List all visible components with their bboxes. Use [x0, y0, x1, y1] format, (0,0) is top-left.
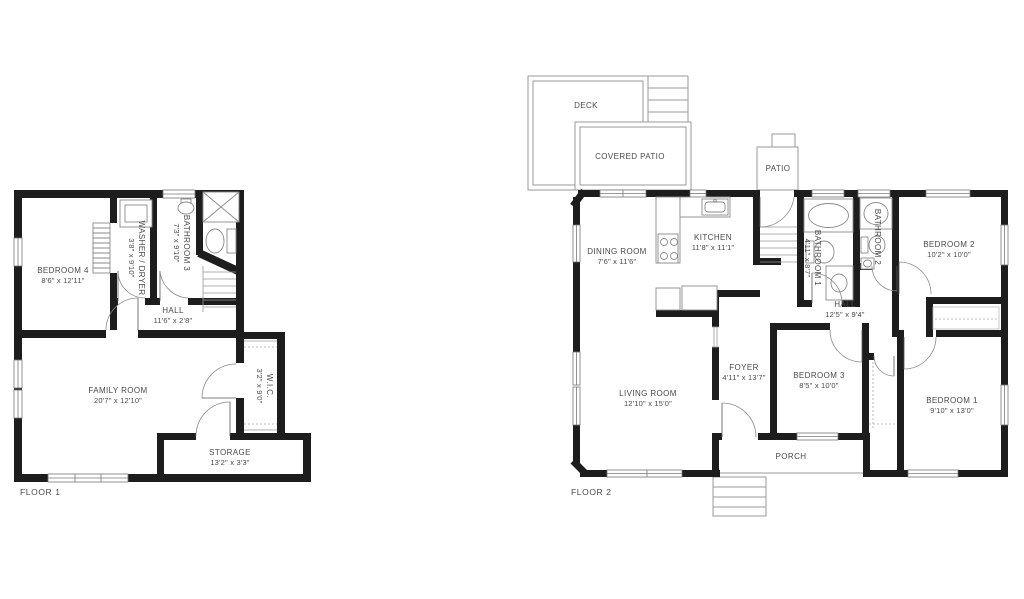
- floor1-walls: [14, 190, 311, 482]
- room-label-bedroom-2: BEDROOM 2 10'2" x 10'0": [923, 240, 975, 260]
- floor1-angled-wall: [199, 253, 238, 271]
- room-label-hall-floor1: HALL 11'6" x 2'8": [154, 306, 193, 326]
- room-label-bathroom-2: BATHROOM 2: [872, 209, 882, 265]
- room-label-foyer: FOYER 4'11" x 13'7": [722, 363, 765, 383]
- floor2-bevel-topleft: [573, 191, 584, 206]
- floor2-title: FLOOR 2: [571, 487, 612, 497]
- room-label-bedroom-4: BEDROOM 4 8'6" x 12'11": [37, 266, 89, 286]
- room-label-dining-room: DINING ROOM 7'6" x 11'6": [587, 247, 647, 267]
- room-label-patio: PATIO: [766, 164, 791, 174]
- room-label-living-room: LIVING ROOM 12'10" x 15'0": [619, 389, 677, 409]
- floorplan-drawing: [0, 0, 1024, 599]
- room-label-wic: W.I.C. 3'2" x 9'0": [254, 369, 274, 404]
- floor2-cased-opening: [712, 327, 719, 347]
- room-label-kitchen: KITCHEN 11'8" x 11'1": [692, 233, 735, 253]
- room-label-bedroom-1: BEDROOM 1 9'10" x 13'0": [926, 396, 978, 416]
- porch-outline: [713, 473, 863, 516]
- room-label-covered-patio: COVERED PATIO: [595, 152, 665, 162]
- patio-outline: [757, 134, 798, 190]
- room-label-bedroom-3: BEDROOM 3 8'5" x 10'0": [793, 371, 845, 391]
- room-label-hall-floor2: HALL 12'5" x 9'4": [825, 300, 864, 320]
- floor2-bevel-bottomleft: [573, 461, 585, 473]
- floor1-title: FLOOR 1: [20, 487, 61, 497]
- floor2-stairs: [760, 227, 797, 262]
- room-label-bathroom-1: BATHROOM 1 4'11" x 8'7": [802, 230, 822, 286]
- room-label-deck: DECK: [574, 101, 598, 111]
- floor2-walls: [573, 190, 1008, 477]
- room-label-washer-dryer: WASHER / DRYER 3'8" x 9'10": [126, 221, 146, 296]
- room-label-family-room: FAMILY ROOM 20'7" x 12'10": [88, 386, 147, 406]
- floor1-stairs: [203, 266, 236, 312]
- room-label-porch: PORCH: [776, 452, 807, 462]
- room-label-bathroom-3: BATHROOM 3 7'3" x 9'10": [171, 215, 191, 271]
- floorplan-page: BEDROOM 4 8'6" x 12'11" WASHER / DRYER 3…: [0, 0, 1024, 599]
- room-label-storage: STORAGE 13'2" x 3'3": [209, 448, 251, 468]
- floor1-doors: [106, 271, 236, 436]
